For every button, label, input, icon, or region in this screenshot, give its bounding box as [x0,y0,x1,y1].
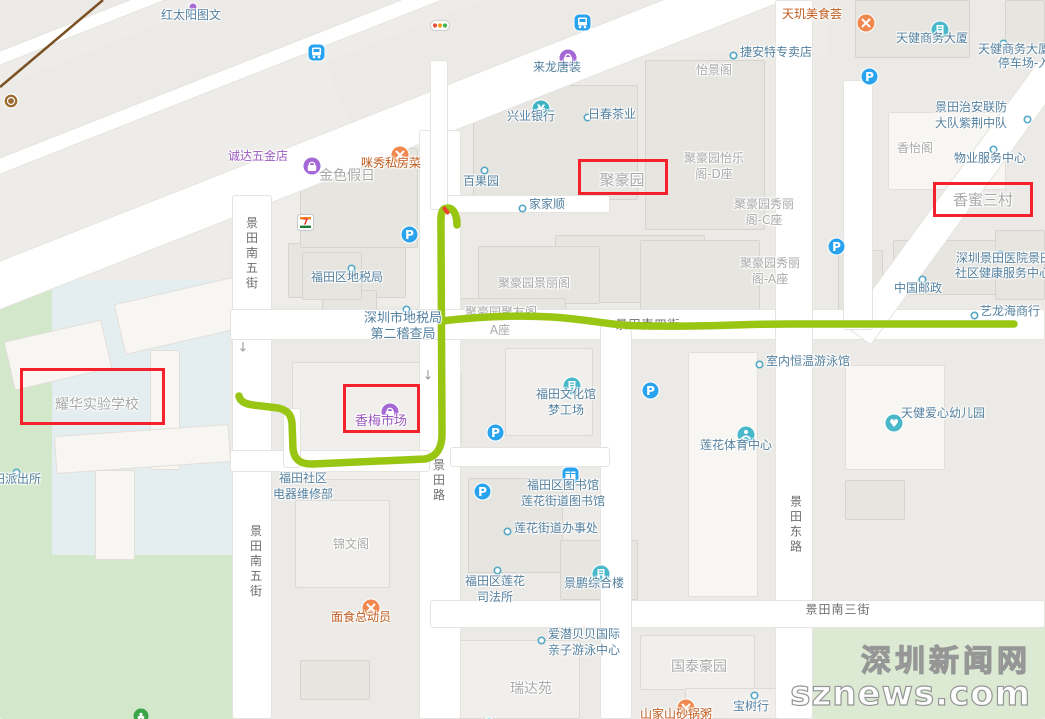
poi-label[interactable]: 天健商务大厦 [896,30,968,46]
poi-label[interactable]: 福田社区电器维修部 [273,470,333,502]
poi-label[interactable]: 红太阳图文 [161,7,221,23]
poi-label[interactable]: 室内恒温游泳馆 [766,353,850,369]
poi-label[interactable]: 聚豪园景丽阁 [498,275,570,291]
poi-label[interactable]: A座 [490,322,510,338]
poi-label[interactable]: 福田区图书馆莲花街道图书馆 [521,477,605,509]
svg-text:P: P [646,384,655,398]
map-area [0,555,238,719]
poi-label[interactable]: 艺龙海商行 [980,303,1040,319]
poi-label[interactable]: 天玑美食荟 [782,6,842,22]
poi-label[interactable]: 爱潜贝贝国际亲子游泳中心 [548,626,620,658]
watermark: 深圳新闻网sznews.com [790,647,1031,711]
poi-label-line: 聚豪园秀丽 [734,196,794,212]
building [95,470,135,560]
street-label: 景田南三街 [805,601,870,618]
poi-label[interactable]: 福田文化馆梦工场 [536,386,596,418]
poi-label[interactable]: 聚豪园秀丽阁-A座 [740,255,800,287]
svg-text:7: 7 [303,218,309,227]
street-label: 景田路 [431,459,448,504]
poi-label[interactable]: 家家顺 [529,196,565,212]
poi-label[interactable]: 瑞达苑 [510,681,552,697]
svg-text:P: P [865,70,874,84]
poi-label-line: 第二稽查局 [364,327,442,343]
map-canvas[interactable]: 景田南五街景田南五街景田路景田东路景田南三街景田南四街 红太阳图文诚达五金店咪秀… [0,0,1045,719]
poi-label-line: 深圳市地税局 [364,311,442,327]
road [600,325,632,719]
road [430,60,448,210]
highlight-box-juhaoyuan [578,159,668,195]
poi-label-line: 梦工场 [536,402,596,418]
svg-text:P: P [478,485,487,499]
watermark-en: sznews.com [790,677,1031,711]
poi-label[interactable]: 兴业银行 [507,108,555,124]
poi-label-line: 电器维修部 [273,486,333,502]
svg-text:P: P [405,228,414,242]
street-label: 景田南四街 [615,316,680,333]
poi-label-line: 阁-A座 [740,271,800,287]
road [230,450,430,472]
poi-label[interactable]: 日春茶业 [588,106,636,122]
highlight-box-xiangmei-market [343,384,420,433]
poi-label[interactable]: 莲花体育中心 [700,437,772,453]
road [283,408,301,468]
poi-label[interactable]: 百果园 [463,173,499,189]
poi-label[interactable]: 聚豪园怡乐阁-D座 [684,150,744,182]
road [450,447,610,467]
poi-label[interactable]: 怡景阁 [696,62,732,78]
poi-label-line: 福田区图书馆 [521,477,605,493]
poi-label[interactable]: 山家山砂锅粥 [640,706,712,719]
down-arrow-icon: ↓ [238,342,249,355]
poi-label-line: 景田治安联防 [935,99,1007,115]
poi-label[interactable]: 天健爱心幼儿园 [901,405,985,421]
poi-label[interactable]: 锦文阁 [333,536,369,552]
poi-label[interactable]: 莲花街道办事处 [514,520,598,536]
poi-label-line: 聚豪园秀丽 [740,255,800,271]
poi-label[interactable]: 来龙唐装 [533,59,581,75]
poi-label[interactable]: 中国邮政 [894,280,942,296]
building [845,480,905,520]
poi-label[interactable]: 景鹏综合楼 [564,575,624,591]
poi-label[interactable]: 国泰豪园 [671,659,727,675]
poi-label[interactable]: 社区健康服务中心 [955,265,1045,281]
down-arrow-icon: ↓ [423,370,434,383]
poi-label-line: 司法所 [465,589,525,605]
street-label: 景田东路 [788,495,805,555]
poi-label[interactable]: 香怡阁 [897,140,933,156]
watermark-cn: 深圳新闻网 [790,647,1031,677]
poi-label-line: 阁-C座 [734,212,794,228]
poi-label-line: 阁-D座 [684,166,744,182]
poi-label[interactable]: 福田区地税局 [311,269,383,285]
highlight-box-yaohua-school [20,368,165,425]
poi-label[interactable]: 宝树行 [733,698,769,714]
poi-label-line: 大队紫荆中队 [935,115,1007,131]
poi-label-line: 福田区莲花 [465,573,525,589]
poi-label[interactable]: 捷安特专卖店 [740,44,812,60]
poi-label-line: 聚豪园怡乐 [684,150,744,166]
poi-label[interactable]: 聚豪园秀丽阁-C座 [734,196,794,228]
poi-label[interactable]: 深圳景田医院景田 [956,250,1045,266]
street-label: 景田南五街 [244,217,261,292]
building [300,660,370,700]
poi-label[interactable]: 诚达五金店 [228,148,288,164]
poi-label[interactable]: 聚豪园聚友阁 [465,304,537,320]
poi-label-line: 莲花街道图书馆 [521,493,605,509]
svg-text:P: P [832,240,841,254]
poi-label-line: 亲子游泳中心 [548,642,620,658]
svg-text:♥: ♥ [889,417,899,430]
poi-label[interactable]: 停车场-入口 [998,55,1045,71]
poi-label-line: 福田文化馆 [536,386,596,402]
poi-label[interactable]: 金色假日 [319,168,375,184]
poi-label-line: 爱潜贝贝国际 [548,626,620,642]
poi-label[interactable]: 田派出所 [0,471,41,487]
building [688,352,758,597]
poi-label[interactable]: 福田区莲花司法所 [465,573,525,605]
street-label: 景田南五街 [248,525,265,600]
road [419,130,461,719]
road [843,80,873,330]
highlight-box-xiangmi-sancun [933,182,1033,217]
poi-label[interactable]: 深圳市地税局第二稽查局 [364,311,442,343]
poi-label[interactable]: 物业服务中心 [954,150,1026,166]
poi-label[interactable]: 面食总动员 [331,609,391,625]
svg-text:P: P [491,426,500,440]
poi-label[interactable]: 景田治安联防大队紫荆中队 [935,99,1007,131]
poi-label-line: 福田社区 [273,470,333,486]
svg-text:♣: ♣ [137,712,146,719]
